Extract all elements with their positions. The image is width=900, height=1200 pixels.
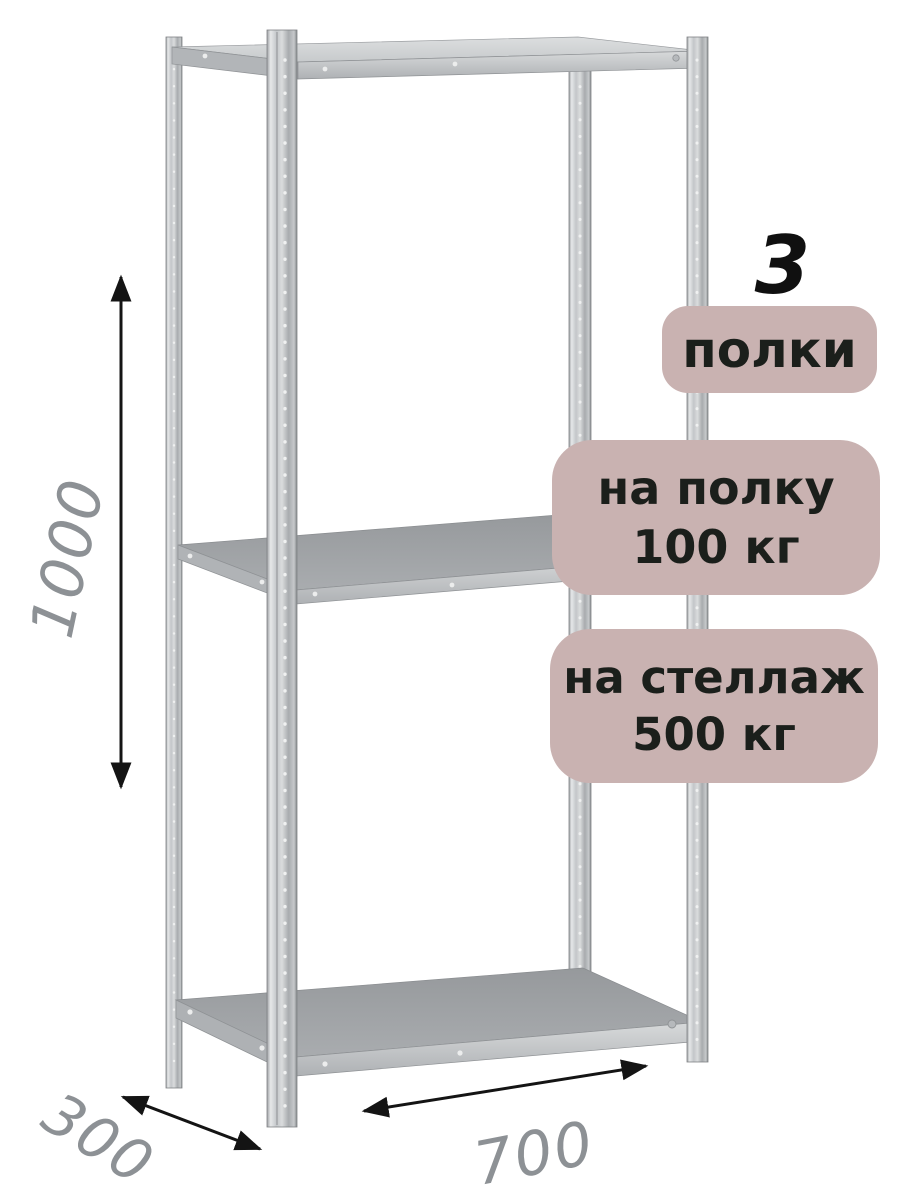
shelf-count-label: полки [662,321,877,379]
shelf-load-line1: на полку [560,459,872,517]
rack-load-line2: 500 кг [556,706,872,763]
rack-load-badge: на стеллаж 500 кг [550,629,878,783]
dimension-arrows [0,0,900,1200]
shelf-count-badge: полки [662,306,877,393]
shelf-count-number: 3 [720,218,845,313]
shelf-load-line2: 100 кг [560,518,872,576]
product-image: 1000 300 700 3 полки на полку 100 кг на … [0,0,900,1200]
rack-load-line1: на стеллаж [556,649,872,706]
shelf-load-badge: на полку 100 кг [552,440,880,595]
